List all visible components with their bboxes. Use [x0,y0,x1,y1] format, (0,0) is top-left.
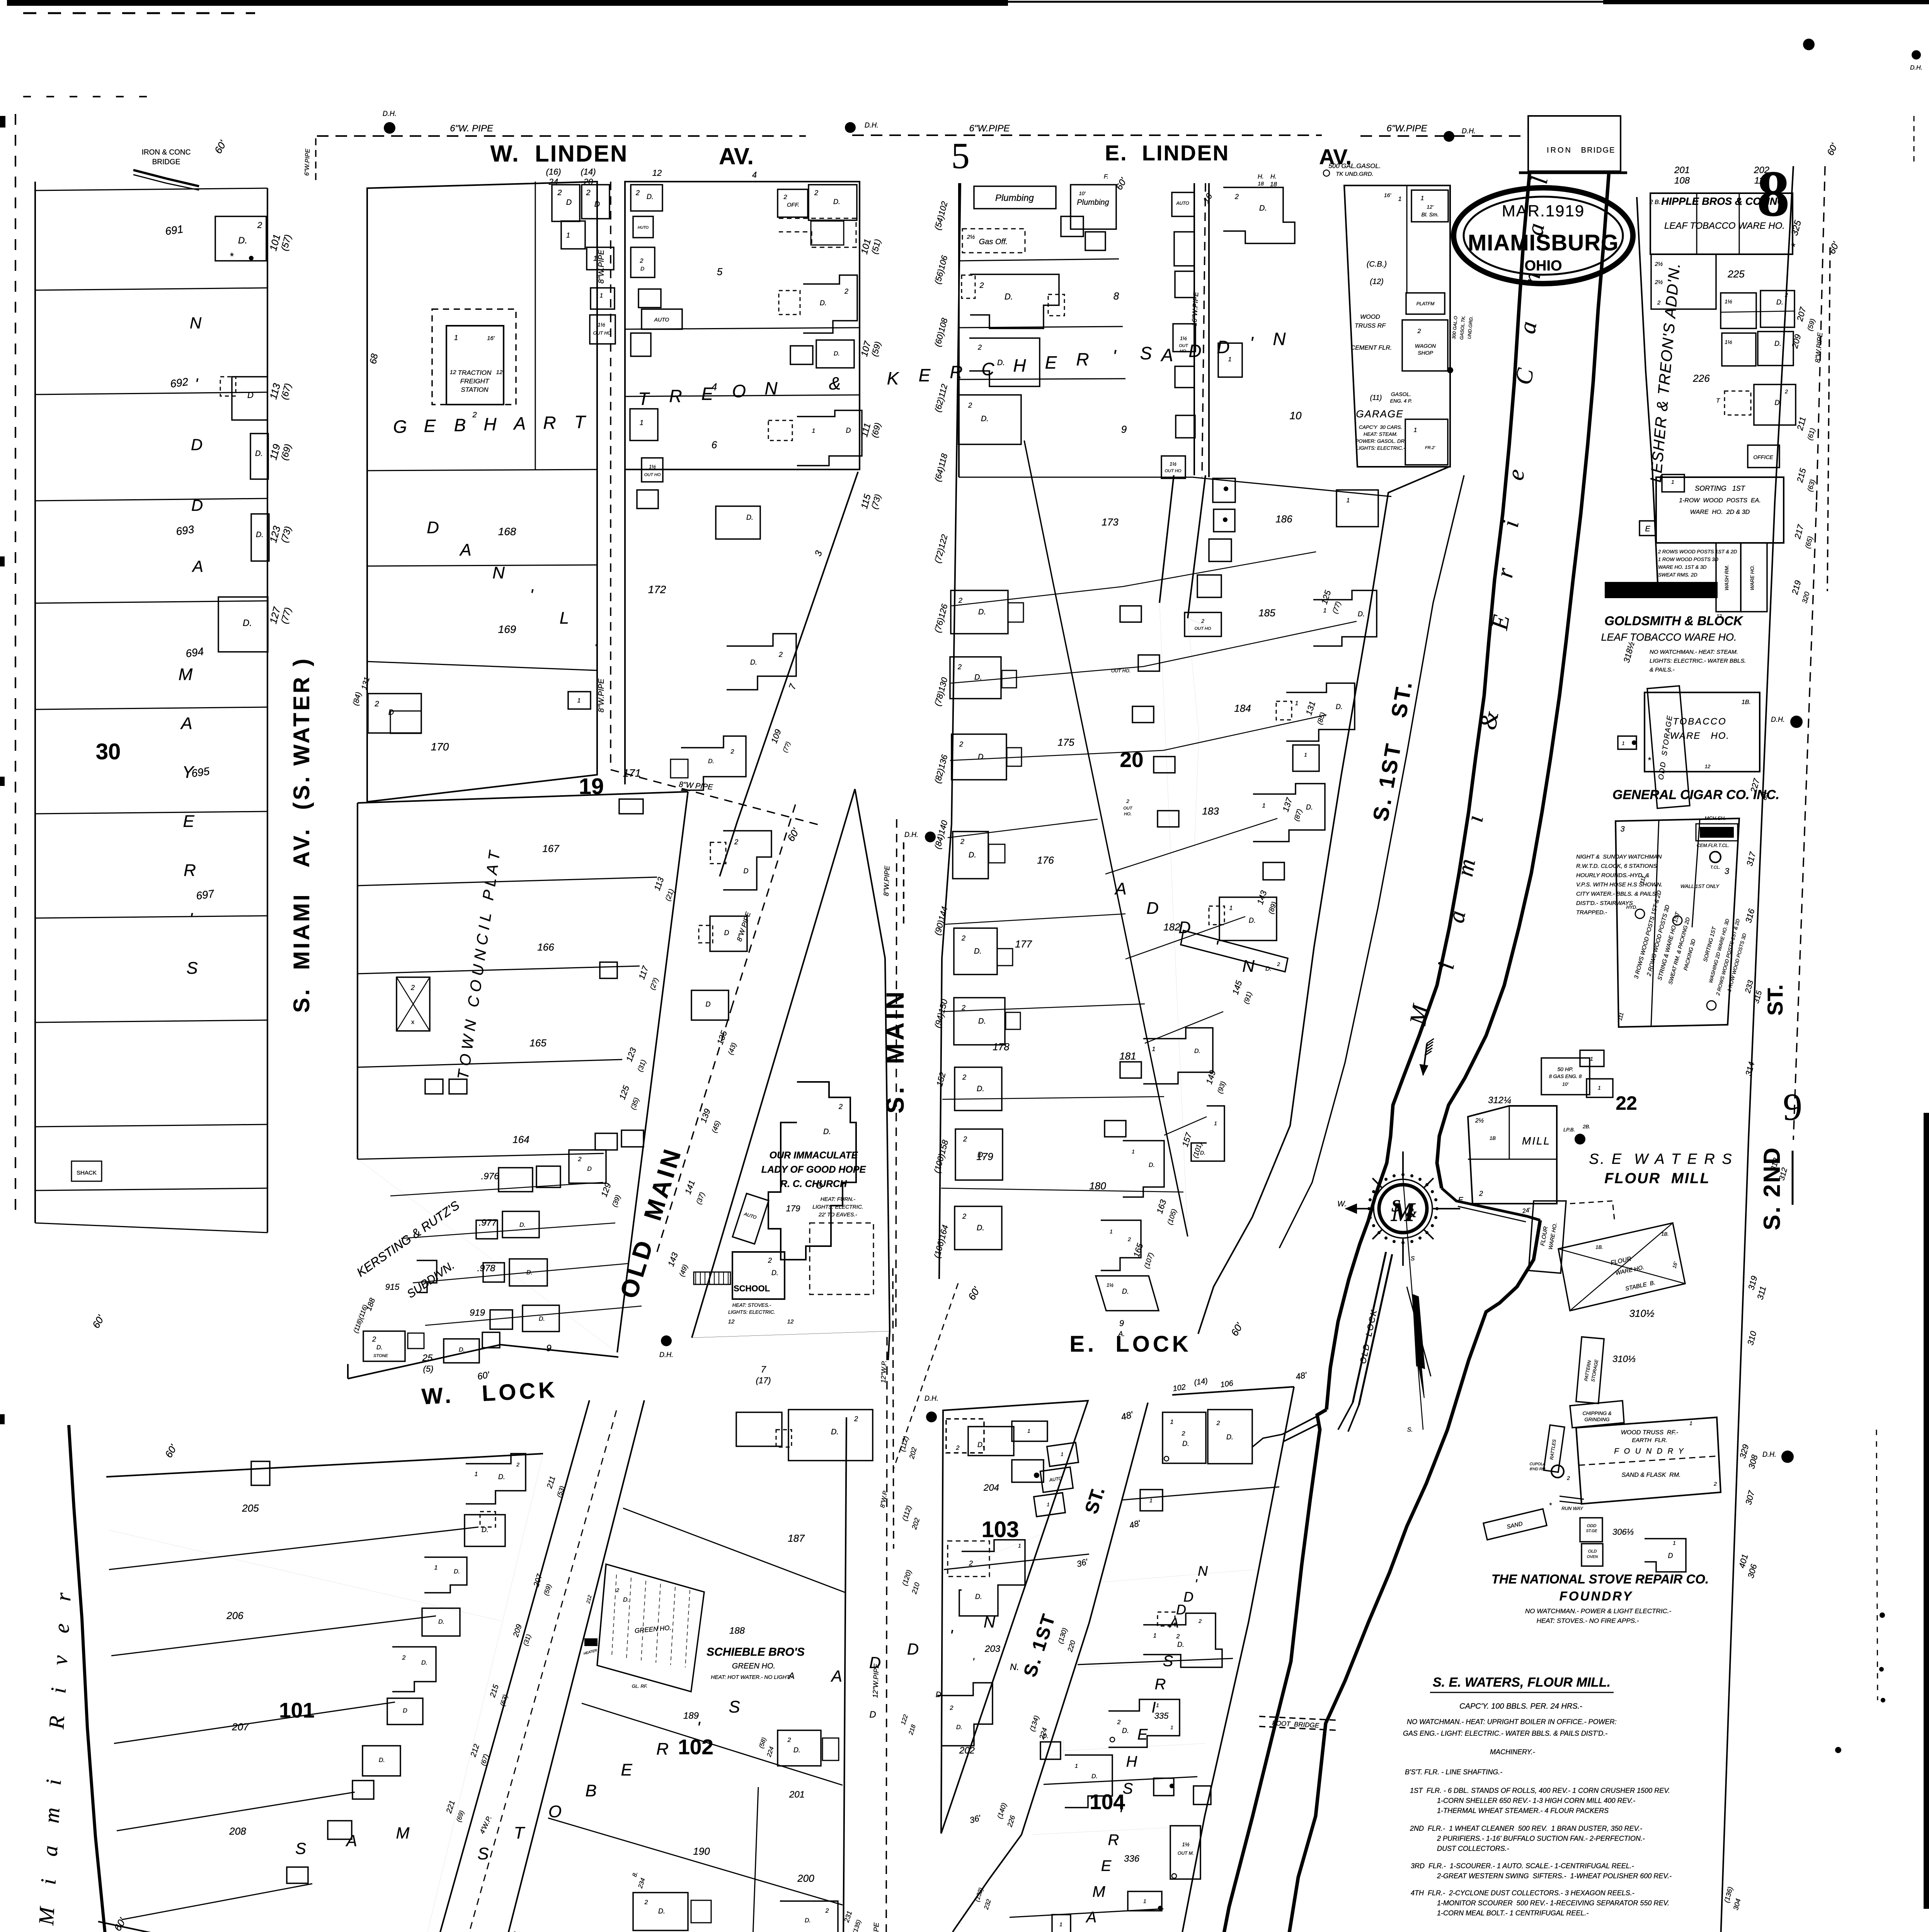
svg-text:&: & [1406,1205,1417,1220]
svg-text:W.: W. [1337,1200,1347,1208]
svg-text:O: O [732,381,746,401]
svg-text:2: 2 [968,401,972,409]
svg-text:1: 1 [1295,700,1299,707]
svg-text:V.P.S. WITH HOSE H.S SHOWN.: V.P.S. WITH HOSE H.S SHOWN. [1576,881,1663,888]
svg-text:1½: 1½ [598,321,605,328]
svg-text:2 B.: 2 B. [1649,199,1660,206]
svg-text:D.H.: D.H. [904,831,918,838]
svg-text:S: S [295,1839,306,1857]
svg-text:D.H.: D.H. [1910,65,1922,71]
svg-text:D.: D. [658,1907,665,1915]
svg-text:D.: D. [376,1344,383,1351]
svg-text:2: 2 [814,189,818,197]
svg-text:D: D [907,1640,919,1658]
svg-text:S.: S. [1407,1427,1413,1433]
svg-text:2½: 2½ [1655,279,1663,286]
svg-text:A: A [180,714,192,733]
svg-text:E: E [919,365,931,385]
svg-text:D.: D. [238,235,247,246]
svg-text:D.: D. [974,947,982,956]
svg-text:1: 1 [1075,1763,1078,1769]
svg-text:IRON: IRON [1547,146,1572,155]
svg-text:D.H.: D.H. [1771,716,1785,723]
svg-text:ST.GE: ST.GE [1586,1529,1597,1533]
svg-text:1B: 1B [1490,1135,1496,1141]
svg-text:4TH FLR.- 2-CYCLONE DUST COL: 4TH FLR.- 2-CYCLONE DUST COLLECTORS.- 3 … [1411,1889,1634,1897]
svg-text:SWEAT RMS. 2D: SWEAT RMS. 2D [1658,572,1697,578]
svg-text:N.: N. [1010,1662,1019,1672]
svg-text:184: 184 [1234,702,1251,714]
svg-text:OUT M.: OUT M. [1178,1850,1194,1856]
svg-text:2: 2 [969,1560,973,1567]
svg-text:*: * [1648,755,1651,765]
svg-text:DIST'D.- STAIRWAYS: DIST'D.- STAIRWAYS [1576,900,1633,906]
svg-text:1: 1 [1398,196,1402,202]
svg-text:4: 4 [752,170,757,180]
svg-text:(C.B.): (C.B.) [1367,260,1387,269]
svg-text:CAPC'Y. 100 BBLS. PER. 24 HRS.: CAPC'Y. 100 BBLS. PER. 24 HRS.- [1459,1702,1582,1711]
svg-text:OUT HO: OUT HO [1195,626,1211,631]
svg-text:': ' [1195,1576,1198,1592]
svg-text:2½: 2½ [1475,1117,1484,1124]
svg-text:N: N [190,314,202,332]
svg-text:181: 181 [1119,1050,1136,1062]
svg-text:2: 2 [838,1103,843,1111]
svg-text:2: 2 [1127,1236,1131,1242]
svg-text:1-CORN MEAL BOLT.- 1 CENTRIFUG: 1-CORN MEAL BOLT.- 1 CENTRIFUGAL REEL.- [1437,1909,1588,1917]
svg-text:OLD: OLD [1588,1549,1597,1554]
svg-text:H: H [484,414,497,434]
svg-text:204: 204 [983,1483,999,1493]
svg-text:W. LINDEN: W. LINDEN [490,141,628,167]
svg-text:D.: D. [1226,1433,1233,1441]
svg-text:2: 2 [1126,798,1129,804]
svg-text:1: 1 [1229,905,1233,912]
svg-text:1: 1 [1590,1056,1593,1062]
svg-text:ENG. 4 P.: ENG. 4 P. [1390,398,1412,404]
svg-text:OUR IMMACULATE: OUR IMMACULATE [770,1150,858,1161]
svg-text:164: 164 [512,1134,529,1145]
svg-text:201: 201 [1674,165,1690,175]
svg-text:50 HP.: 50 HP. [1558,1066,1573,1072]
svg-text:A: A [513,413,526,434]
svg-text:203: 203 [984,1644,1001,1654]
svg-text:HEAT: STEAM.: HEAT: STEAM. [1364,431,1398,437]
svg-text:187: 187 [788,1532,805,1544]
svg-text:THE NATIONAL STOVE REPAIR CO.: THE NATIONAL STOVE REPAIR CO. [1491,1572,1709,1586]
svg-text:6"W. PIPE: 6"W. PIPE [450,123,494,134]
svg-text:NIGHT & SUNDAY WATCHMAN: NIGHT & SUNDAY WATCHMAN [1576,854,1662,860]
svg-text:1: 1 [593,255,597,262]
svg-text:(12): (12) [1370,277,1384,286]
svg-text:20: 20 [583,177,593,187]
svg-text:D.: D. [981,415,989,423]
svg-text:D.: D. [978,753,986,761]
svg-text:8"W.PIPE: 8"W.PIPE [597,679,606,713]
svg-text:D.: D. [977,1224,984,1232]
svg-text:TRAPPED.-: TRAPPED.- [1576,909,1607,916]
svg-text:D: D [587,1166,592,1172]
svg-text:2 PURIFIERS.- 1-16' BUFFALO SU: 2 PURIFIERS.- 1-16' BUFFALO SUCTION FAN.… [1437,1835,1645,1842]
svg-text:915: 915 [385,1282,400,1292]
svg-text:D: D [566,198,572,207]
svg-text:171: 171 [623,767,641,779]
svg-text:HO.: HO. [1124,812,1132,816]
svg-text:D.: D. [805,1917,811,1924]
svg-text:GASOL.: GASOL. [1391,391,1411,397]
svg-text:16': 16' [1384,192,1392,198]
svg-text:R.W.T.D. CLOCK, 6 STATIONS: R.W.T.D. CLOCK, 6 STATIONS [1576,863,1657,869]
svg-text:WASH RM.: WASH RM. [1724,565,1730,590]
svg-text:202: 202 [959,1745,975,1756]
svg-text:12"W.PIPE: 12"W.PIPE [871,1922,880,1932]
svg-text:*: * [1549,1502,1552,1509]
svg-text:D.: D. [708,758,714,765]
svg-text:D.H.: D.H. [865,121,879,129]
svg-text:12: 12 [1705,764,1711,769]
svg-text:1: 1 [1214,1120,1217,1126]
svg-text:2: 2 [844,287,848,295]
svg-text:D.: D. [243,618,252,628]
svg-text:2: 2 [730,748,734,755]
svg-text:GREEN HO.: GREEN HO. [732,1662,775,1670]
svg-text:1: 1 [454,334,458,342]
svg-text:POWER: GASOL. DR.: POWER: GASOL. DR. [1355,438,1406,444]
svg-text:C: C [981,359,994,379]
svg-text:D.: D. [956,1724,962,1731]
svg-text:K: K [887,368,900,388]
svg-text:NO WATCHMAN.- HEAT: UPRIGHT BO: NO WATCHMAN.- HEAT: UPRIGHT BOILER IN OF… [1407,1718,1617,1726]
svg-text:D: D [1183,1589,1193,1605]
svg-text:306⅓: 306⅓ [1612,1527,1634,1537]
svg-text:A: A [830,1667,842,1685]
svg-text:2: 2 [961,1004,965,1012]
svg-text:8"W.PIPE: 8"W.PIPE [882,865,891,896]
svg-text:& PAILS.-: & PAILS.- [1650,667,1675,673]
svg-text:310½: 310½ [1629,1308,1654,1319]
svg-text:1: 1 [1132,1148,1135,1155]
svg-text:OUT HO: OUT HO [593,330,611,336]
svg-text:2: 2 [374,700,379,708]
svg-text:60': 60' [477,1369,491,1382]
svg-text:103: 103 [982,1517,1019,1542]
svg-text:CEMENT FLR.: CEMENT FLR. [1351,345,1392,351]
svg-text:D.: D. [746,514,753,521]
svg-text:500 GAL.GASOL.: 500 GAL.GASOL. [1328,162,1381,170]
svg-text:1½: 1½ [1725,298,1732,304]
svg-text:179: 179 [786,1204,800,1213]
svg-text:.978: .978 [477,1263,495,1274]
svg-text:22' TO EAVES.-: 22' TO EAVES.- [818,1211,857,1218]
svg-text:L: L [560,609,569,628]
svg-text:12: 12 [728,1318,735,1325]
svg-text:185: 185 [1258,607,1275,619]
svg-text:2: 2 [557,189,562,197]
svg-text:D: D [936,1690,941,1699]
svg-text:SCHIEBLE BRO'S: SCHIEBLE BRO'S [707,1646,805,1658]
svg-text:GL. RF.: GL. RF. [632,1684,647,1689]
svg-text:H: H [1126,1753,1137,1770]
svg-text:D.: D. [1122,1727,1129,1735]
svg-text:2: 2 [734,838,738,846]
svg-text:HOURLY ROUNDS.-HYD. &: HOURLY ROUNDS.-HYD. & [1576,872,1649,879]
svg-text:D.: D. [1336,703,1343,711]
svg-text:D.: D. [1259,204,1267,213]
svg-text:226: 226 [1692,372,1710,384]
svg-text:310⅓: 310⅓ [1612,1354,1636,1364]
svg-text:1: 1 [1228,356,1232,363]
svg-text:D.: D. [539,1316,545,1322]
svg-text:M: M [179,665,193,684]
svg-text:2: 2 [1201,618,1204,624]
svg-text:D.: D. [1306,803,1313,811]
svg-text:D.: D. [438,1619,444,1625]
svg-text:2½: 2½ [967,234,975,240]
svg-text:D: D [1146,899,1159,918]
svg-text:180: 180 [1089,1180,1106,1192]
svg-text:R: R [1108,1832,1119,1849]
svg-text:D: D [869,1709,876,1720]
svg-text:D: D [191,435,203,454]
svg-text:E: E [1645,525,1650,533]
svg-text:D.: D. [255,449,263,458]
svg-text:R: R [656,1740,669,1759]
svg-text:HEAT: STOVES.-: HEAT: STOVES.- [732,1302,771,1308]
svg-text:HIPPLE BROS & CO. INC: HIPPLE BROS & CO. INC [1661,196,1785,207]
svg-text:D.: D. [834,350,840,357]
svg-text:2: 2 [616,1587,619,1593]
svg-text:D.: D. [771,1269,778,1277]
svg-text:OHIO: OHIO [1524,258,1562,274]
svg-text:OUT HO: OUT HO [1165,469,1182,473]
svg-text:F O U N D R Y: F O U N D R Y [1614,1447,1685,1456]
svg-text:3RD FLR.- 1-SCOURER.- 1 AUTO: 3RD FLR.- 1-SCOURER.- 1 AUTO. SCALE.- 1-… [1411,1862,1634,1870]
svg-text:S. E W A T E R S: S. E W A T E R S [1589,1151,1733,1167]
svg-text:D.: D. [623,1597,629,1603]
svg-text:2: 2 [372,1335,376,1343]
svg-text:12: 12 [787,1318,794,1325]
svg-text:SCHOOL: SCHOOL [734,1284,770,1293]
svg-text:WARE HO.: WARE HO. [1749,565,1755,590]
svg-text:165: 165 [529,1037,547,1049]
svg-text:A: A [1114,879,1126,898]
svg-text:Bl. Sm.: Bl. Sm. [1421,211,1439,218]
svg-text:CEM.FLR.T.CL.: CEM.FLR.T.CL. [1697,843,1729,848]
svg-text:697: 697 [195,888,215,902]
svg-text:1: 1 [566,231,570,239]
svg-text:WALL 1ST ONLY: WALL 1ST ONLY [1680,883,1720,889]
svg-text:(11): (11) [1370,394,1382,401]
svg-text:10': 10' [1079,190,1086,196]
svg-text:S. MIAMI AV. (S. WATER ): S. MIAMI AV. (S. WATER ) [289,656,314,1013]
svg-text:(5): (5) [423,1364,434,1374]
svg-text:201: 201 [789,1789,805,1800]
svg-text:D.: D. [969,851,976,859]
svg-text:2: 2 [956,1445,960,1451]
svg-text:188: 188 [729,1626,745,1636]
svg-text:HO.: HO. [1180,349,1187,354]
svg-text:ST.: ST. [1763,985,1787,1016]
svg-text:2: 2 [1277,961,1280,967]
svg-text:E: E [1101,1857,1112,1874]
svg-text:206: 206 [226,1610,243,1621]
svg-text:TRACTION: TRACTION [458,369,492,376]
svg-text:CAPC'Y 30 CARS.: CAPC'Y 30 CARS. [1359,424,1402,430]
svg-text:D.: D. [498,1473,505,1481]
svg-text:207: 207 [232,1721,249,1733]
svg-text:R: R [1076,349,1089,369]
svg-text:24: 24 [548,177,558,187]
svg-text:BRIDGE: BRIDGE [1581,146,1616,155]
svg-text:1½: 1½ [1182,1841,1190,1847]
svg-text:205: 205 [242,1502,259,1514]
svg-text:D.H.: D.H. [659,1351,673,1359]
svg-text:9: 9 [546,1343,551,1354]
svg-text:D.: D. [1091,1773,1098,1780]
svg-text:2: 2 [578,1156,582,1163]
svg-text:(14): (14) [581,167,596,177]
svg-text:F.: F. [1104,173,1108,180]
svg-text:HUTO: HUTO [638,226,649,230]
svg-text:182: 182 [1163,921,1180,933]
svg-text:1½: 1½ [1180,335,1187,341]
svg-text:A: A [1160,345,1173,365]
svg-text:D: D [706,1000,711,1008]
svg-text:1: 1 [1347,497,1350,504]
svg-text:D.: D. [833,198,840,206]
svg-text:WAGON: WAGON [1415,343,1436,349]
svg-text:110: 110 [1754,175,1769,186]
svg-text:S: S [729,1697,740,1716]
svg-text:225: 225 [1727,268,1745,280]
svg-text:A: A [788,1671,795,1681]
svg-text:WARE HO. 2D & 3D: WARE HO. 2D & 3D [1690,509,1750,515]
svg-text:1: 1 [1059,1921,1062,1927]
svg-text:WOOD: WOOD [1360,314,1380,320]
svg-text:12: 12 [450,369,456,376]
svg-text:167: 167 [542,843,560,854]
svg-text:GARAGE: GARAGE [1356,408,1403,420]
svg-text:178: 178 [993,1041,1010,1053]
svg-text:D: D [247,390,254,400]
svg-text:NO WATCHMAN.- HEAT: STEAM.: NO WATCHMAN.- HEAT: STEAM. [1650,649,1738,655]
svg-text:R: R [1155,1676,1166,1693]
svg-text:D: D [1668,1552,1673,1560]
svg-text:TK UND.GRD.: TK UND.GRD. [1336,171,1374,177]
svg-text:6"W.PIPE: 6"W.PIPE [969,123,1010,134]
svg-text:2-GREAT WESTERN SWING SIFTERS: 2-GREAT WESTERN SWING SIFTERS.- 1-WHEAT … [1437,1872,1672,1880]
svg-text:T: T [638,389,650,409]
svg-text:2: 2 [1117,1719,1121,1726]
svg-text:E: E [621,1760,632,1779]
svg-text:D.: D. [526,1269,533,1276]
svg-text:D.: D. [1358,610,1365,618]
svg-text:Y: Y [182,763,194,782]
svg-text:190: 190 [693,1845,710,1857]
svg-text:N: N [1198,1563,1208,1579]
svg-text:6"W.PIPE: 6"W.PIPE [304,148,311,176]
svg-text:1: 1 [1323,607,1327,614]
svg-text:2: 2 [963,1135,967,1143]
svg-text:N: N [492,563,505,582]
svg-text:183: 183 [1202,805,1219,817]
svg-text:SAND & FLASK RM.: SAND & FLASK RM. [1622,1472,1681,1478]
svg-text:LEAF TOBACCO WARE HO.: LEAF TOBACCO WARE HO. [1601,631,1737,643]
svg-text:1½: 1½ [1170,461,1176,467]
svg-text:NO WATCHMAN.- POWER & LIGHT EL: NO WATCHMAN.- POWER & LIGHT ELECTRIC.- [1525,1607,1671,1615]
svg-text:TOBACCO: TOBACCO [1673,716,1726,727]
svg-text:EARTH FLR.: EARTH FLR. [1632,1437,1667,1444]
svg-text:R: R [543,413,556,433]
svg-text:B: B [585,1781,596,1800]
svg-text:GOLDSMITH & BLOCK: GOLDSMITH & BLOCK [1604,614,1743,628]
svg-text:170: 170 [431,741,449,753]
svg-text:D.H.: D.H. [924,1395,938,1402]
svg-text:.977: .977 [479,1218,497,1228]
svg-text:1: 1 [1153,1633,1157,1639]
svg-text:2B.: 2B. [1582,1124,1590,1129]
svg-text:186: 186 [1275,513,1292,525]
svg-text:&: & [829,373,841,393]
svg-text:1: 1 [1673,1540,1676,1546]
svg-text:CITY WATER.- BBLS. & PAILS: CITY WATER.- BBLS. & PAILS [1576,891,1656,897]
svg-text:10: 10 [1289,410,1302,422]
svg-text:WOOD TRUSS RF.-: WOOD TRUSS RF.- [1621,1429,1678,1436]
svg-text:.976: .976 [481,1171,499,1182]
svg-text:2: 2 [1234,193,1239,201]
svg-text:A: A [1086,1909,1097,1926]
svg-text:1 ROW WOOD POSTS 3D: 1 ROW WOOD POSTS 3D [1658,556,1718,562]
svg-text:D.: D. [1177,1641,1184,1648]
svg-text:(17): (17) [756,1376,771,1385]
svg-text:SHACK: SHACK [77,1170,97,1176]
svg-text:MCH.SH.: MCH.SH. [1705,815,1726,821]
svg-text:9: 9 [1119,1318,1124,1328]
svg-text:168: 168 [498,526,516,537]
svg-text:1: 1 [1689,1420,1692,1426]
svg-text:1: 1 [1110,1228,1113,1235]
svg-text:OUT: OUT [1123,806,1133,811]
svg-text:D.: D. [978,608,986,616]
svg-text:(16): (16) [546,167,561,177]
svg-text:18: 18 [1258,180,1264,187]
svg-text:OVEN: OVEN [1587,1555,1598,1559]
svg-text:177: 177 [1015,938,1032,950]
svg-text:1-THERMAL WHEAT STEAMER.- 4 FL: 1-THERMAL WHEAT STEAMER.- 4 FLOUR PACKER… [1437,1807,1609,1815]
svg-text:1: 1 [1061,1451,1063,1457]
svg-text:R: R [184,861,196,880]
svg-text:169: 169 [498,623,516,635]
svg-text:S: S [186,959,197,978]
svg-text:208: 208 [229,1825,246,1837]
svg-text:D.: D. [977,1441,984,1449]
svg-text:LEAF TOBACCO WARE HO.: LEAF TOBACCO WARE HO. [1664,221,1785,231]
svg-text:2 ROWS WOOD POSTS 1ST & 2D: 2 ROWS WOOD POSTS 1ST & 2D [1658,549,1737,554]
svg-text:2: 2 [787,1737,791,1743]
svg-text:2: 2 [635,189,640,197]
svg-text:S: S [477,1844,489,1863]
svg-text:8 GAS ENG. 8: 8 GAS ENG. 8 [1549,1073,1582,1079]
svg-text:LP.B.: LP.B. [1563,1127,1575,1133]
svg-text:D.: D. [978,1017,986,1026]
svg-text:D: D [744,867,749,875]
svg-text:2½: 2½ [1655,261,1663,267]
svg-text:8: 8 [1113,290,1119,302]
svg-text:E: E [183,812,194,831]
svg-text:HEAT: FURN.-: HEAT: FURN.- [821,1196,856,1202]
svg-text:D.: D. [1776,298,1783,306]
svg-text:H: H [1013,355,1026,376]
